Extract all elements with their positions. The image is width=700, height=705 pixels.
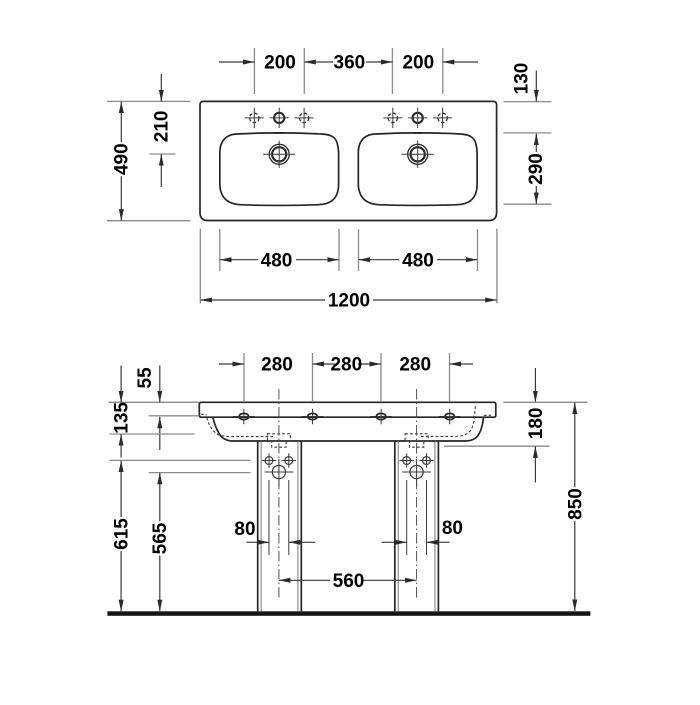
svg-text:490: 490 xyxy=(112,143,133,175)
svg-text:80: 80 xyxy=(442,518,463,539)
svg-text:615: 615 xyxy=(111,518,132,550)
svg-text:210: 210 xyxy=(152,111,173,143)
svg-text:280: 280 xyxy=(399,355,431,376)
svg-text:180: 180 xyxy=(526,408,547,440)
svg-text:135: 135 xyxy=(111,402,132,434)
svg-text:1200: 1200 xyxy=(328,291,370,312)
svg-text:80: 80 xyxy=(234,519,255,540)
svg-text:280: 280 xyxy=(330,355,362,376)
svg-text:55: 55 xyxy=(135,367,156,389)
svg-text:480: 480 xyxy=(261,250,293,271)
svg-text:290: 290 xyxy=(526,153,547,185)
svg-text:200: 200 xyxy=(402,53,434,74)
svg-text:280: 280 xyxy=(261,355,293,376)
svg-text:480: 480 xyxy=(402,250,434,271)
svg-text:130: 130 xyxy=(512,63,533,95)
svg-text:200: 200 xyxy=(264,53,296,74)
svg-text:565: 565 xyxy=(150,522,171,554)
svg-text:850: 850 xyxy=(565,488,586,520)
svg-text:560: 560 xyxy=(333,571,365,592)
svg-text:360: 360 xyxy=(334,53,366,74)
